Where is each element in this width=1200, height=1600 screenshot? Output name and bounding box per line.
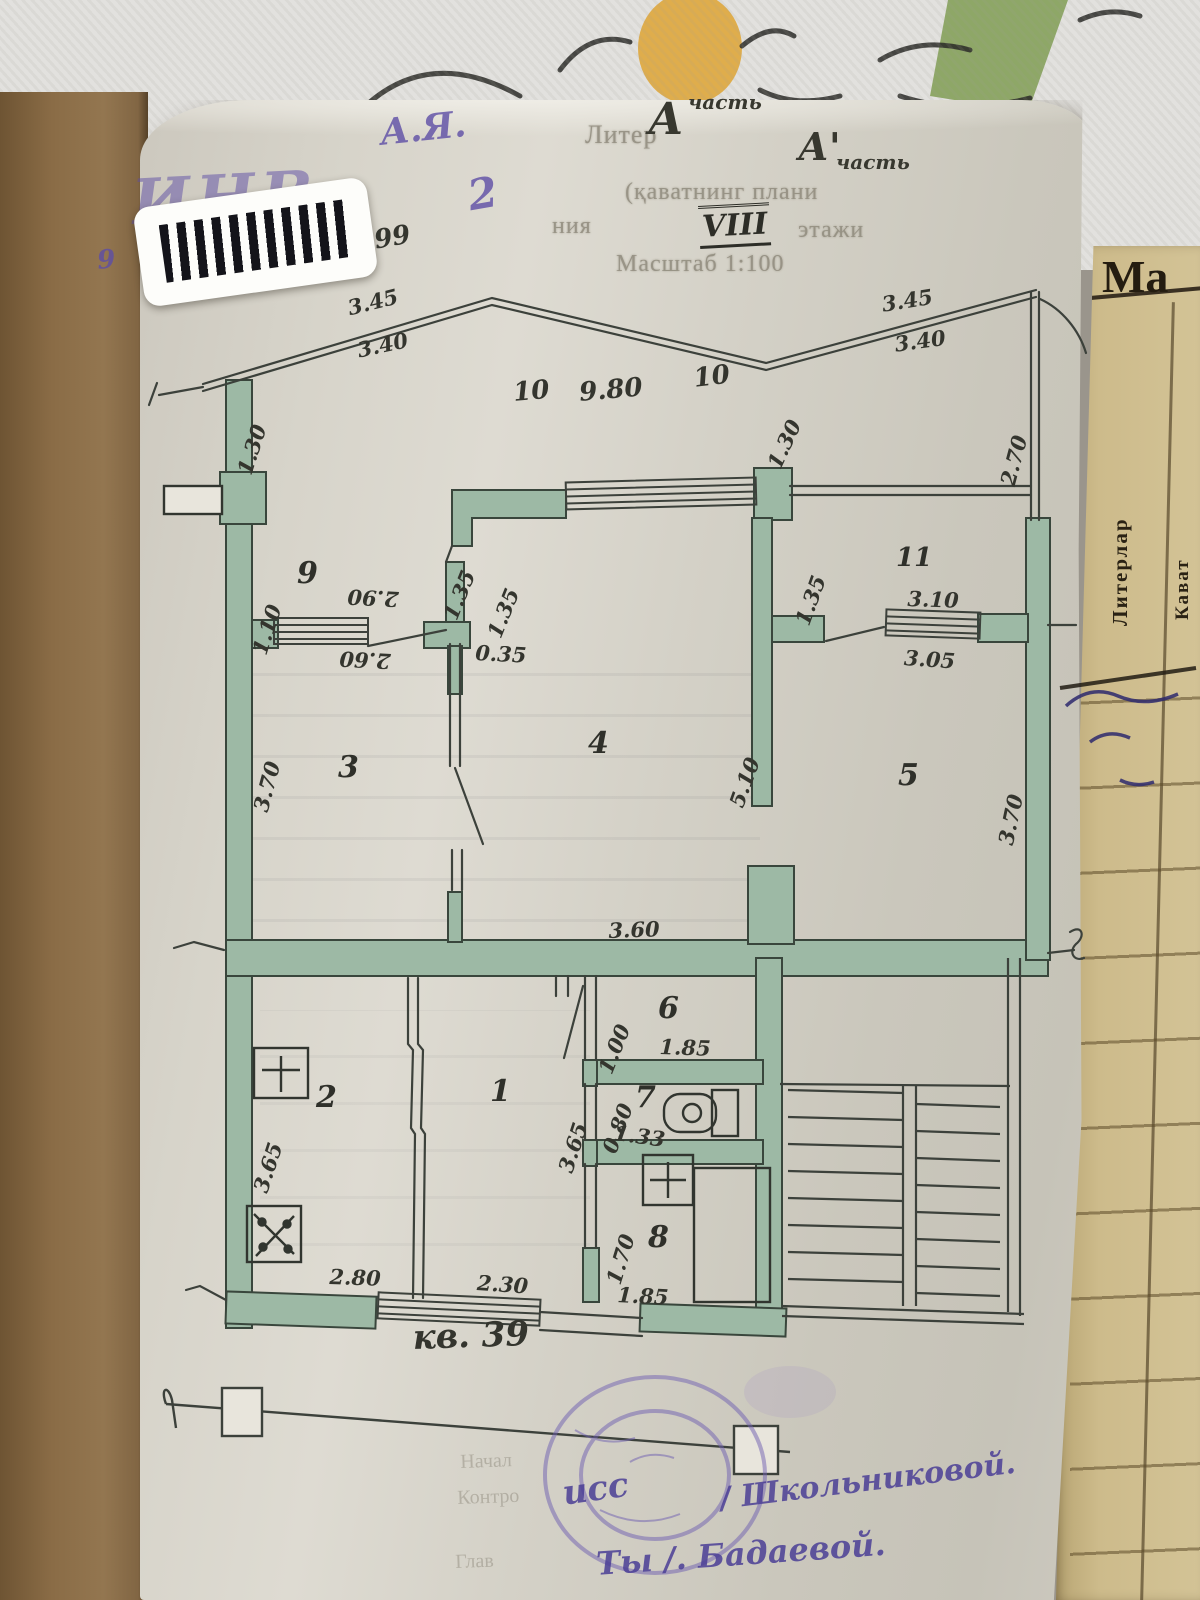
room-label-7: 7 [635, 1080, 656, 1115]
dim-label: 2.90 [347, 584, 399, 612]
barcode-bars-icon [159, 199, 354, 283]
dim-label: 1.85 [659, 1034, 711, 1061]
walls-green [220, 380, 1050, 1337]
window-room4-top [566, 477, 757, 509]
room-label-6: 6 [658, 991, 679, 1026]
dim-label: 2.60 [339, 646, 391, 674]
floor-number: VIII [698, 202, 772, 249]
dim-label: 9.80 [578, 372, 644, 407]
dim-label: 3.05 [903, 645, 956, 674]
dim-label: 3.10 [907, 586, 959, 613]
form-line3-left: ния [552, 214, 592, 238]
axis-node-square-1 [222, 1388, 262, 1436]
form-print-fragment-1: Начал [460, 1450, 512, 1472]
stamp-smudge [744, 1366, 836, 1418]
room-label-1: 1 [490, 1074, 511, 1109]
index-page-title: Ма [1102, 250, 1168, 303]
dim-label: 3.60 [608, 916, 660, 943]
handwritten-initials: А.Я. [378, 103, 468, 154]
dim-label: 10 [512, 375, 551, 408]
balcony-stub [164, 486, 222, 514]
dim-label: 10 [692, 360, 732, 394]
handwritten-99: 99 [372, 220, 413, 256]
form-print-fragment-3: Глав [455, 1551, 494, 1572]
handwritten-9: 9 [96, 244, 117, 275]
room-label-8: 8 [648, 1220, 669, 1255]
room-label-5: 5 [898, 758, 919, 793]
toilet-icon [664, 1090, 738, 1136]
liter-value-2-sub: часть [836, 150, 910, 174]
dim-label: 1.85 [617, 1282, 669, 1310]
form-line3-right: этажи [798, 218, 864, 242]
form-line2: (қаватнинг плани [625, 180, 818, 204]
index-page-handwriting [1060, 668, 1196, 785]
liter-value: А [648, 94, 684, 145]
dim-label: 2.30 [476, 1270, 529, 1299]
index-col-kavat: Кават [1172, 420, 1194, 620]
dim-label: 0.35 [475, 640, 527, 668]
liter-value-sup: часть [688, 90, 762, 114]
stairwell [780, 958, 1024, 1324]
window-room11 [886, 609, 981, 638]
room-label-11: 11 [896, 543, 932, 573]
walls-thin-ink [149, 290, 1086, 1336]
form-liter-label: Литер [585, 122, 657, 148]
apartment-number-label: кв. 39 [412, 1314, 530, 1358]
stove-icon [247, 1206, 301, 1262]
room-label-9: 9 [297, 556, 318, 591]
sink-icon [254, 1048, 308, 1098]
form-scale-line: Масштаб 1:100 [616, 252, 784, 276]
room-label-4: 4 [588, 726, 609, 761]
dim-label: 2.80 [329, 1264, 381, 1291]
room-label-2: 2 [316, 1080, 337, 1115]
liter-value-2: А' [798, 124, 841, 169]
form-print-fragment-2: Контро [457, 1486, 520, 1508]
window-room3-top [274, 618, 368, 644]
room-label-3: 3 [338, 750, 359, 785]
index-col-literlar: Литерлар [1108, 366, 1133, 626]
